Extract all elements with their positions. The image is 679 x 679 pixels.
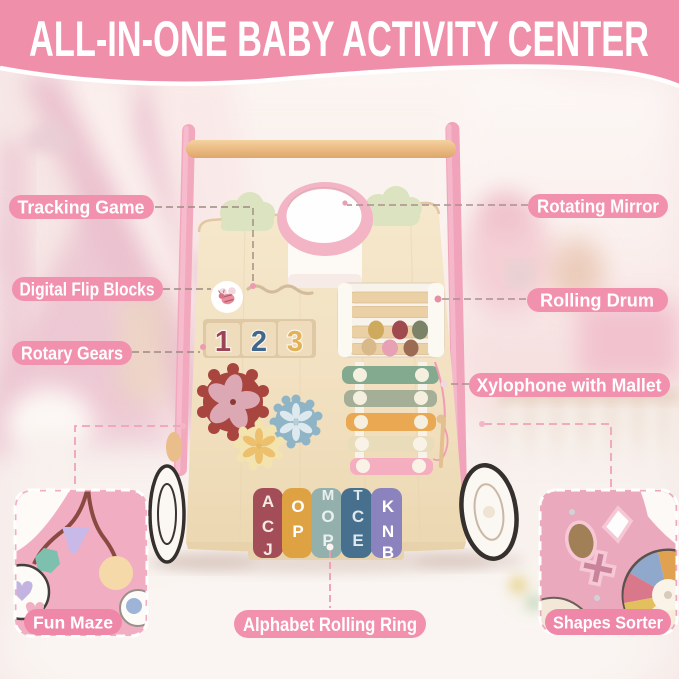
svg-text:Rolling Drum: Rolling Drum — [540, 291, 654, 311]
svg-text:ALL-IN-ONE BABY ACTIVITY CENTE: ALL-IN-ONE BABY ACTIVITY CENTER — [29, 11, 649, 67]
svg-text:B: B — [382, 543, 394, 562]
svg-text:M: M — [322, 487, 335, 504]
svg-text:Alphabet Rolling Ring: Alphabet Rolling Ring — [243, 614, 417, 636]
svg-text:N: N — [382, 522, 394, 541]
svg-text:K: K — [382, 497, 395, 516]
svg-text:T: T — [353, 487, 362, 504]
svg-text:Rotating Mirror: Rotating Mirror — [537, 197, 659, 217]
svg-text:Fun Maze: Fun Maze — [33, 613, 113, 633]
svg-text:C: C — [262, 517, 274, 536]
svg-text:3: 3 — [287, 326, 303, 358]
svg-text:C: C — [352, 507, 364, 526]
svg-text:O: O — [291, 497, 304, 516]
svg-text:E: E — [352, 531, 363, 550]
svg-text:Digital Flip Blocks: Digital Flip Blocks — [20, 280, 155, 300]
svg-text:Xylophone with Mallet: Xylophone with Mallet — [477, 376, 662, 396]
svg-text:J: J — [263, 540, 272, 559]
svg-text:Tracking Game: Tracking Game — [18, 198, 145, 218]
svg-text:2: 2 — [251, 326, 267, 358]
svg-text:O: O — [321, 507, 334, 526]
svg-text:1: 1 — [215, 326, 231, 358]
svg-text:A: A — [262, 492, 274, 511]
svg-text:P: P — [292, 522, 303, 541]
svg-text:Rotary Gears: Rotary Gears — [21, 344, 123, 364]
svg-text:Shapes Sorter: Shapes Sorter — [553, 613, 663, 633]
